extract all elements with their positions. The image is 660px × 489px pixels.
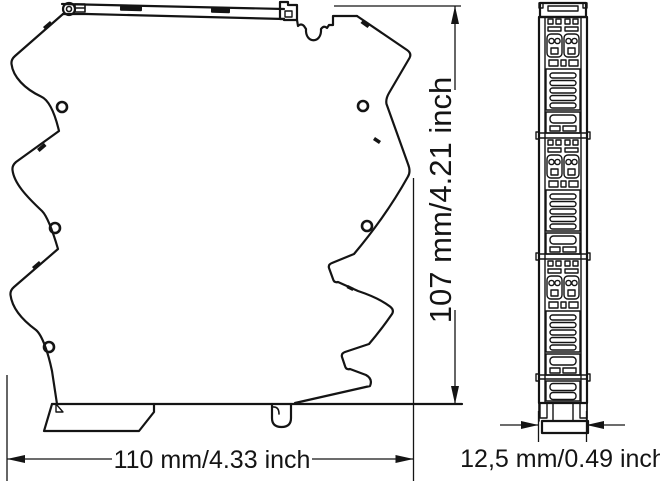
rail-slot (211, 8, 230, 13)
arrowhead-down (451, 386, 459, 404)
arrowhead-left (587, 421, 605, 429)
height-dimension: 107 mm/4.21 inch (334, 6, 461, 404)
arrowhead-up (451, 6, 459, 24)
bottom-slot-block (546, 381, 580, 401)
din-rail-latch (297, 16, 357, 40)
terminal-level (546, 261, 580, 375)
bottom-hook (272, 404, 291, 427)
arrowhead-left (7, 455, 25, 463)
hinge-ring-inner (67, 7, 72, 12)
arrowhead-right (521, 421, 539, 429)
rail-end-bracket (280, 2, 297, 20)
technical-drawing-page: 110 mm/4.33 inch 107 mm/4.21 inch 12,5 m… (0, 0, 660, 489)
top-rail-bar (62, 3, 284, 19)
side-view (10, 2, 462, 431)
mounting-hole (358, 101, 368, 111)
level-joints (536, 132, 590, 381)
depth-dimension-label: 12,5 mm/0.49 inch (460, 445, 660, 473)
module-right-edge (295, 16, 410, 403)
front-view (536, 3, 590, 433)
top-cap (539, 3, 587, 17)
mounting-foot (44, 404, 154, 431)
edge-nubs (32, 20, 381, 291)
width-dimension: 110 mm/4.33 inch (7, 178, 414, 481)
rail-slot (120, 6, 142, 11)
height-dimension-label: 107 mm/4.21 inch (423, 77, 458, 323)
arrowhead-right (396, 455, 414, 463)
terminal-level (546, 19, 580, 133)
width-dimension-label: 110 mm/4.33 inch (114, 446, 311, 474)
front-foot (539, 403, 588, 433)
technical-drawing: 110 mm/4.33 inch 107 mm/4.21 inch 12,5 m… (0, 0, 660, 489)
terminal-level (546, 140, 580, 254)
mounting-hole (57, 102, 67, 112)
mounting-hole (362, 221, 372, 231)
